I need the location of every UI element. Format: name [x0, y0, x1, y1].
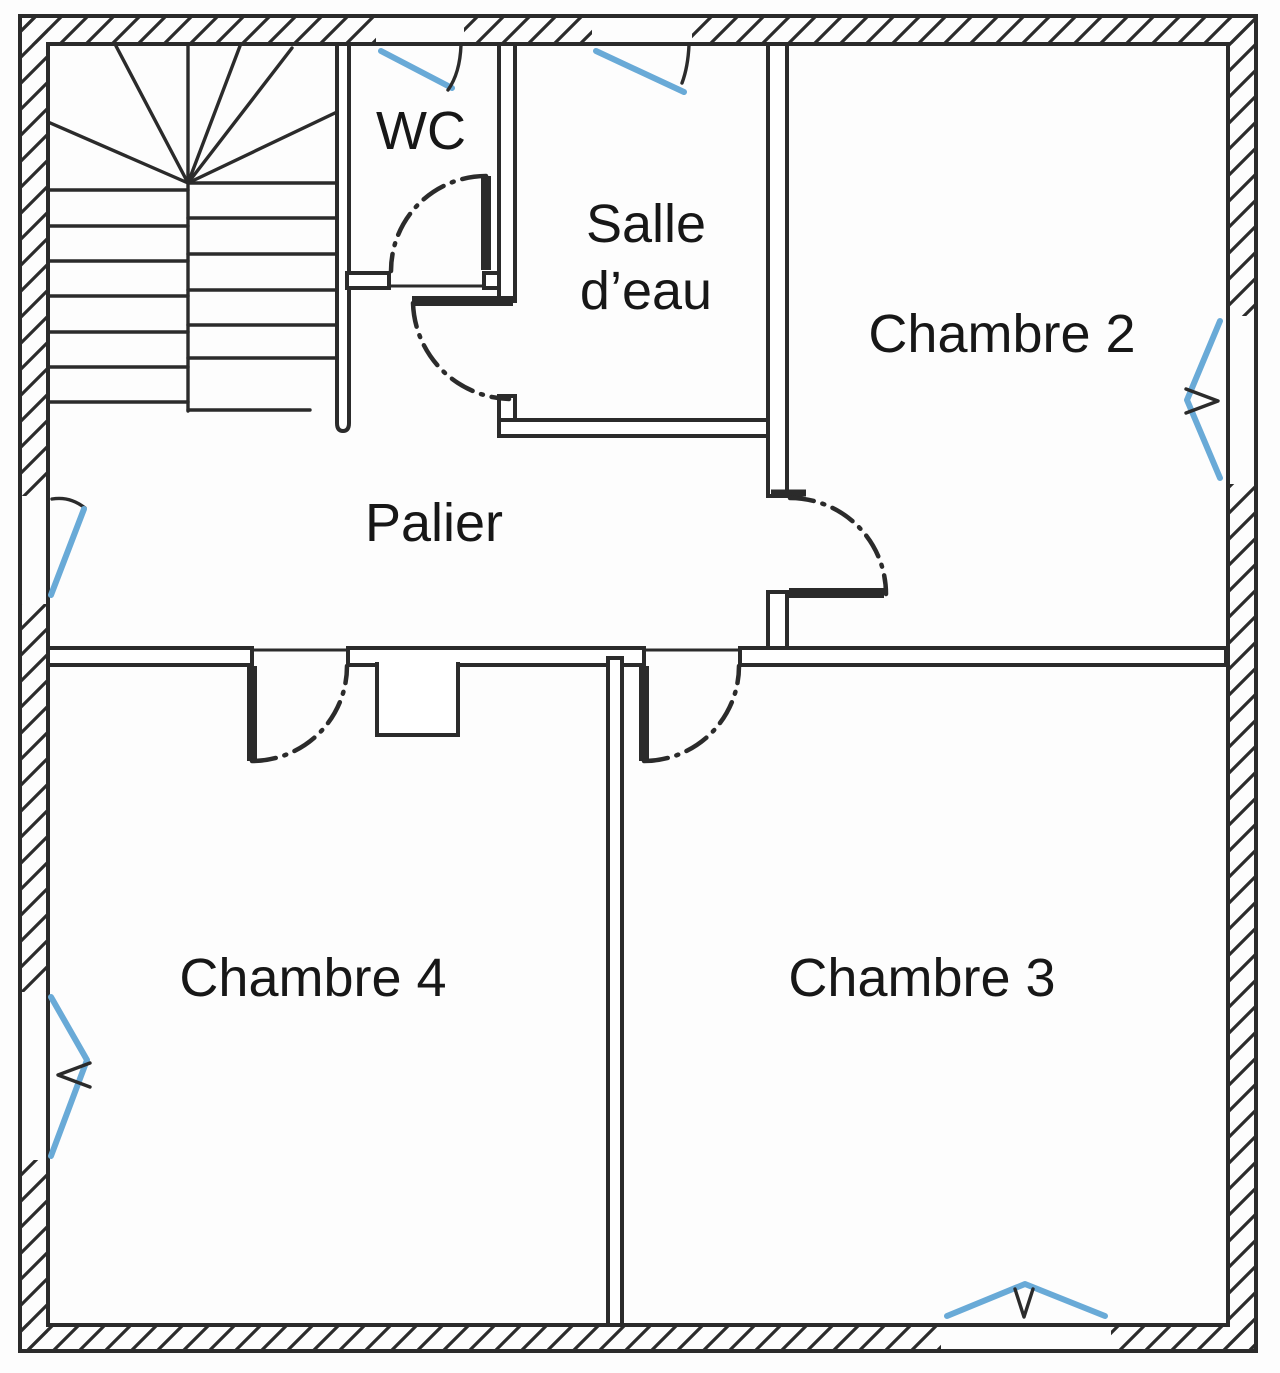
salle-eau-label-line1: Salle: [586, 194, 706, 254]
wc-label: WC: [376, 101, 466, 161]
palier-window-opening: [22, 496, 46, 604]
salle-eau-label-line2: d’eau: [580, 261, 712, 321]
wc-window-opening: [376, 18, 464, 42]
salle-eau-window-opening: [592, 18, 692, 42]
chambre2-label: Chambre 2: [868, 304, 1135, 364]
wc-bottom-wall-left: [347, 273, 389, 288]
chambre3-label: Chambre 3: [788, 948, 1055, 1008]
floor-plan: WC Salle d’eau Chambre 2 Palier Chambre …: [0, 0, 1280, 1373]
right-wall-hatch: [1228, 16, 1256, 1351]
palier-label: Palier: [365, 493, 503, 553]
salle-eau-bottom-wall: [499, 420, 787, 436]
chambre3-window-opening: [941, 1327, 1111, 1349]
chambre2-window-opening: [1230, 316, 1254, 484]
salle-eau-left-wall: [499, 44, 515, 301]
chambre4-chambre3-wall: [608, 658, 622, 1325]
stair-right-wall: [337, 44, 349, 431]
divider-wall-east: [740, 648, 1226, 665]
chambre4-window-opening: [22, 992, 46, 1160]
divider-wall-west: [48, 648, 252, 665]
chambre4-label: Chambre 4: [179, 948, 446, 1008]
chambre2-left-wall-upper: [768, 44, 787, 496]
duct-notch: [377, 662, 458, 735]
